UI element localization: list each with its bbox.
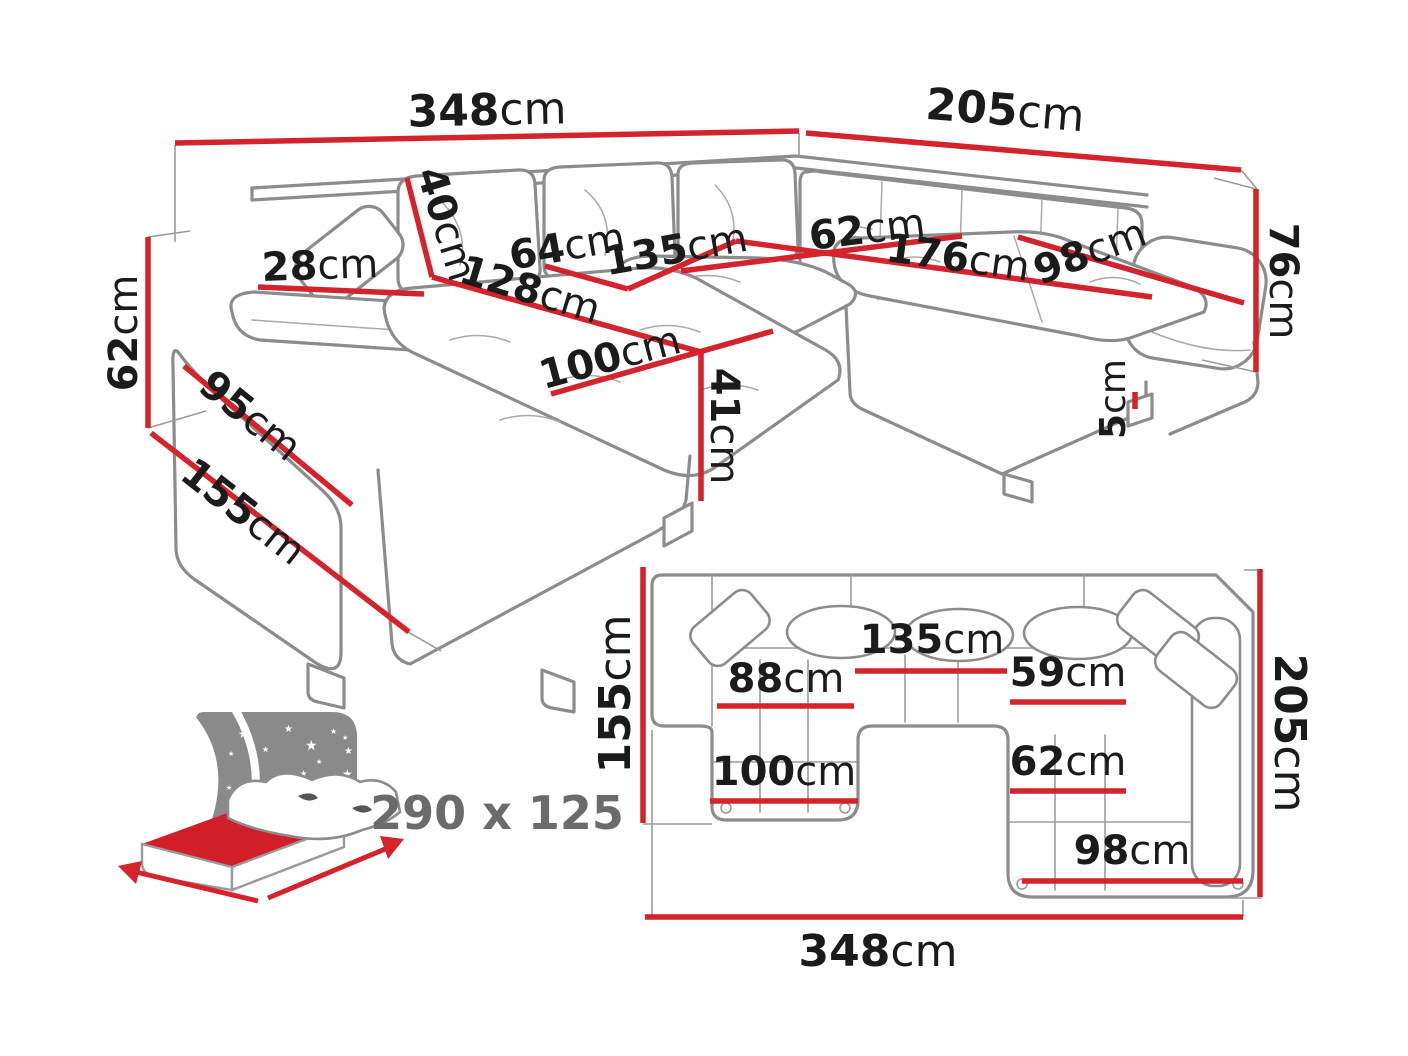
diagram-canvas: 348cm 205cm 76cm 5cm 62cm 155cm 95cm 28c… <box>0 0 1408 1056</box>
plan-label-middle-width: 135cm <box>860 617 1004 663</box>
svg-text:★: ★ <box>342 734 348 742</box>
plan-label-chaise-width: 100cm <box>712 749 856 795</box>
svg-text:★: ★ <box>305 738 318 754</box>
plan-label-total-width: 348cm <box>799 926 958 977</box>
plan-label-right-depth: 205cm <box>1264 654 1315 813</box>
sleeping-area-size: 290 x 125 <box>370 786 624 840</box>
svg-text:★: ★ <box>344 746 353 757</box>
plan-view: 155cm 88cm 135cm 59cm 62cm 100cm 98cm 20… <box>590 567 1315 977</box>
svg-text:★: ★ <box>330 727 337 736</box>
plan-label-right-seat-2: 62cm <box>1010 739 1127 785</box>
svg-text:★: ★ <box>284 724 293 735</box>
plan-label-right-width: 98cm <box>1074 828 1191 874</box>
svg-text:★: ★ <box>226 784 232 792</box>
dim-label-arm-width: 28cm <box>261 241 379 291</box>
furniture-dimension-diagram: 348cm 205cm 76cm 5cm 62cm 155cm 95cm 28c… <box>0 0 1408 1056</box>
dim-label-seat-height: 41cm <box>701 368 747 485</box>
dim-label-back-height: 76cm <box>1260 223 1306 340</box>
plan-label-left-depth: 155cm <box>590 615 641 774</box>
sleeping-icon: ★ ★ ★ ★ ★ ★ ★ ★ ★ ★ ★ ★ ★ ★ ★ ★ ★ ★ ★ ★ <box>118 704 624 901</box>
dim-label-right-depth: 205cm <box>924 79 1086 142</box>
svg-text:★: ★ <box>228 750 234 758</box>
svg-text:★: ★ <box>262 745 269 754</box>
dim-label-arm-height: 62cm <box>101 275 147 392</box>
dim-label-total-width: 348cm <box>407 83 567 137</box>
dim-label-leg-height: 5cm <box>1093 359 1134 439</box>
svg-text:★: ★ <box>316 758 322 766</box>
plan-label-chaise-seat: 88cm <box>728 656 845 702</box>
plan-label-right-seat: 59cm <box>1010 650 1127 696</box>
